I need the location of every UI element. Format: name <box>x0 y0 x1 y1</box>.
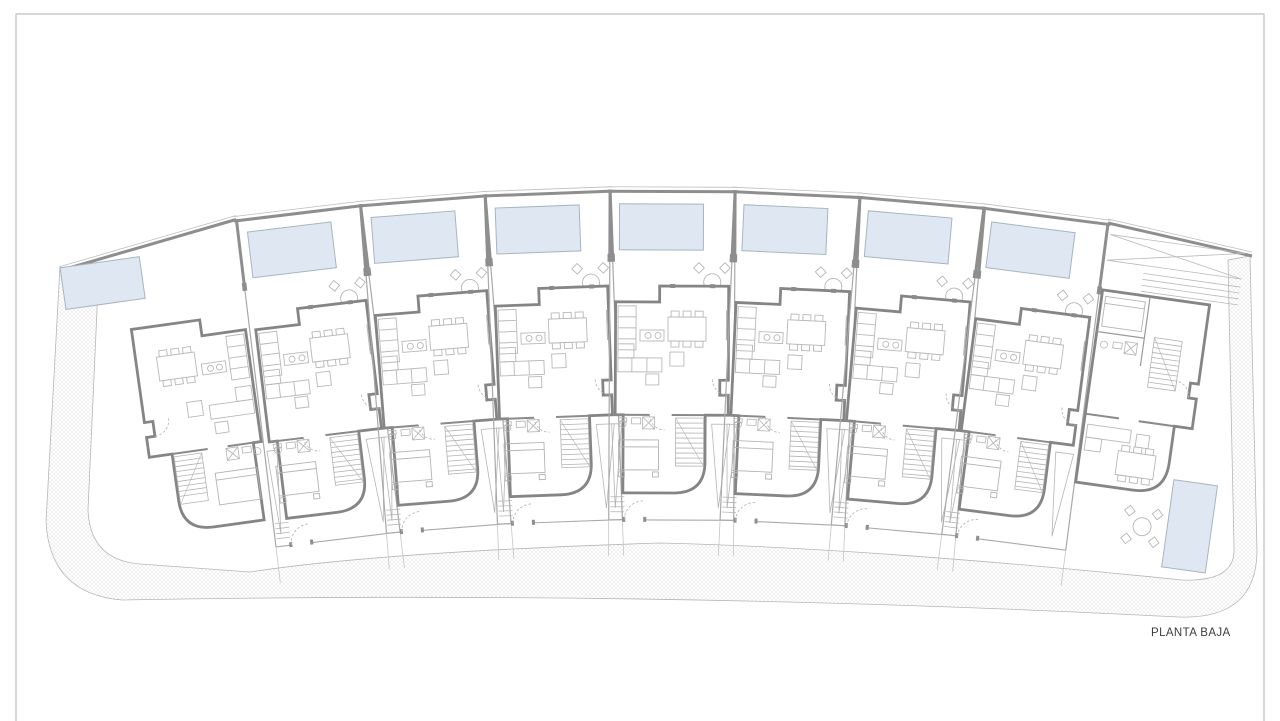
unit-end-right <box>1066 234 1250 572</box>
swimming-pool <box>60 257 145 310</box>
unit-6 <box>716 187 863 562</box>
rear-wall-left-extension <box>62 220 236 271</box>
unit-5 <box>606 187 738 557</box>
dining-table <box>1114 445 1157 486</box>
standard-units-row <box>233 187 1110 587</box>
site-plan-svg <box>0 0 1280 721</box>
dining-table <box>156 346 199 387</box>
swimming-pool <box>1162 480 1218 573</box>
plan-sheet: PLANTA BAJA <box>0 0 1280 721</box>
plan-title: PLANTA BAJA <box>1151 627 1231 639</box>
unit-4 <box>483 187 627 561</box>
outdoor-table-icon <box>1120 505 1164 549</box>
unit-7 <box>826 193 988 572</box>
